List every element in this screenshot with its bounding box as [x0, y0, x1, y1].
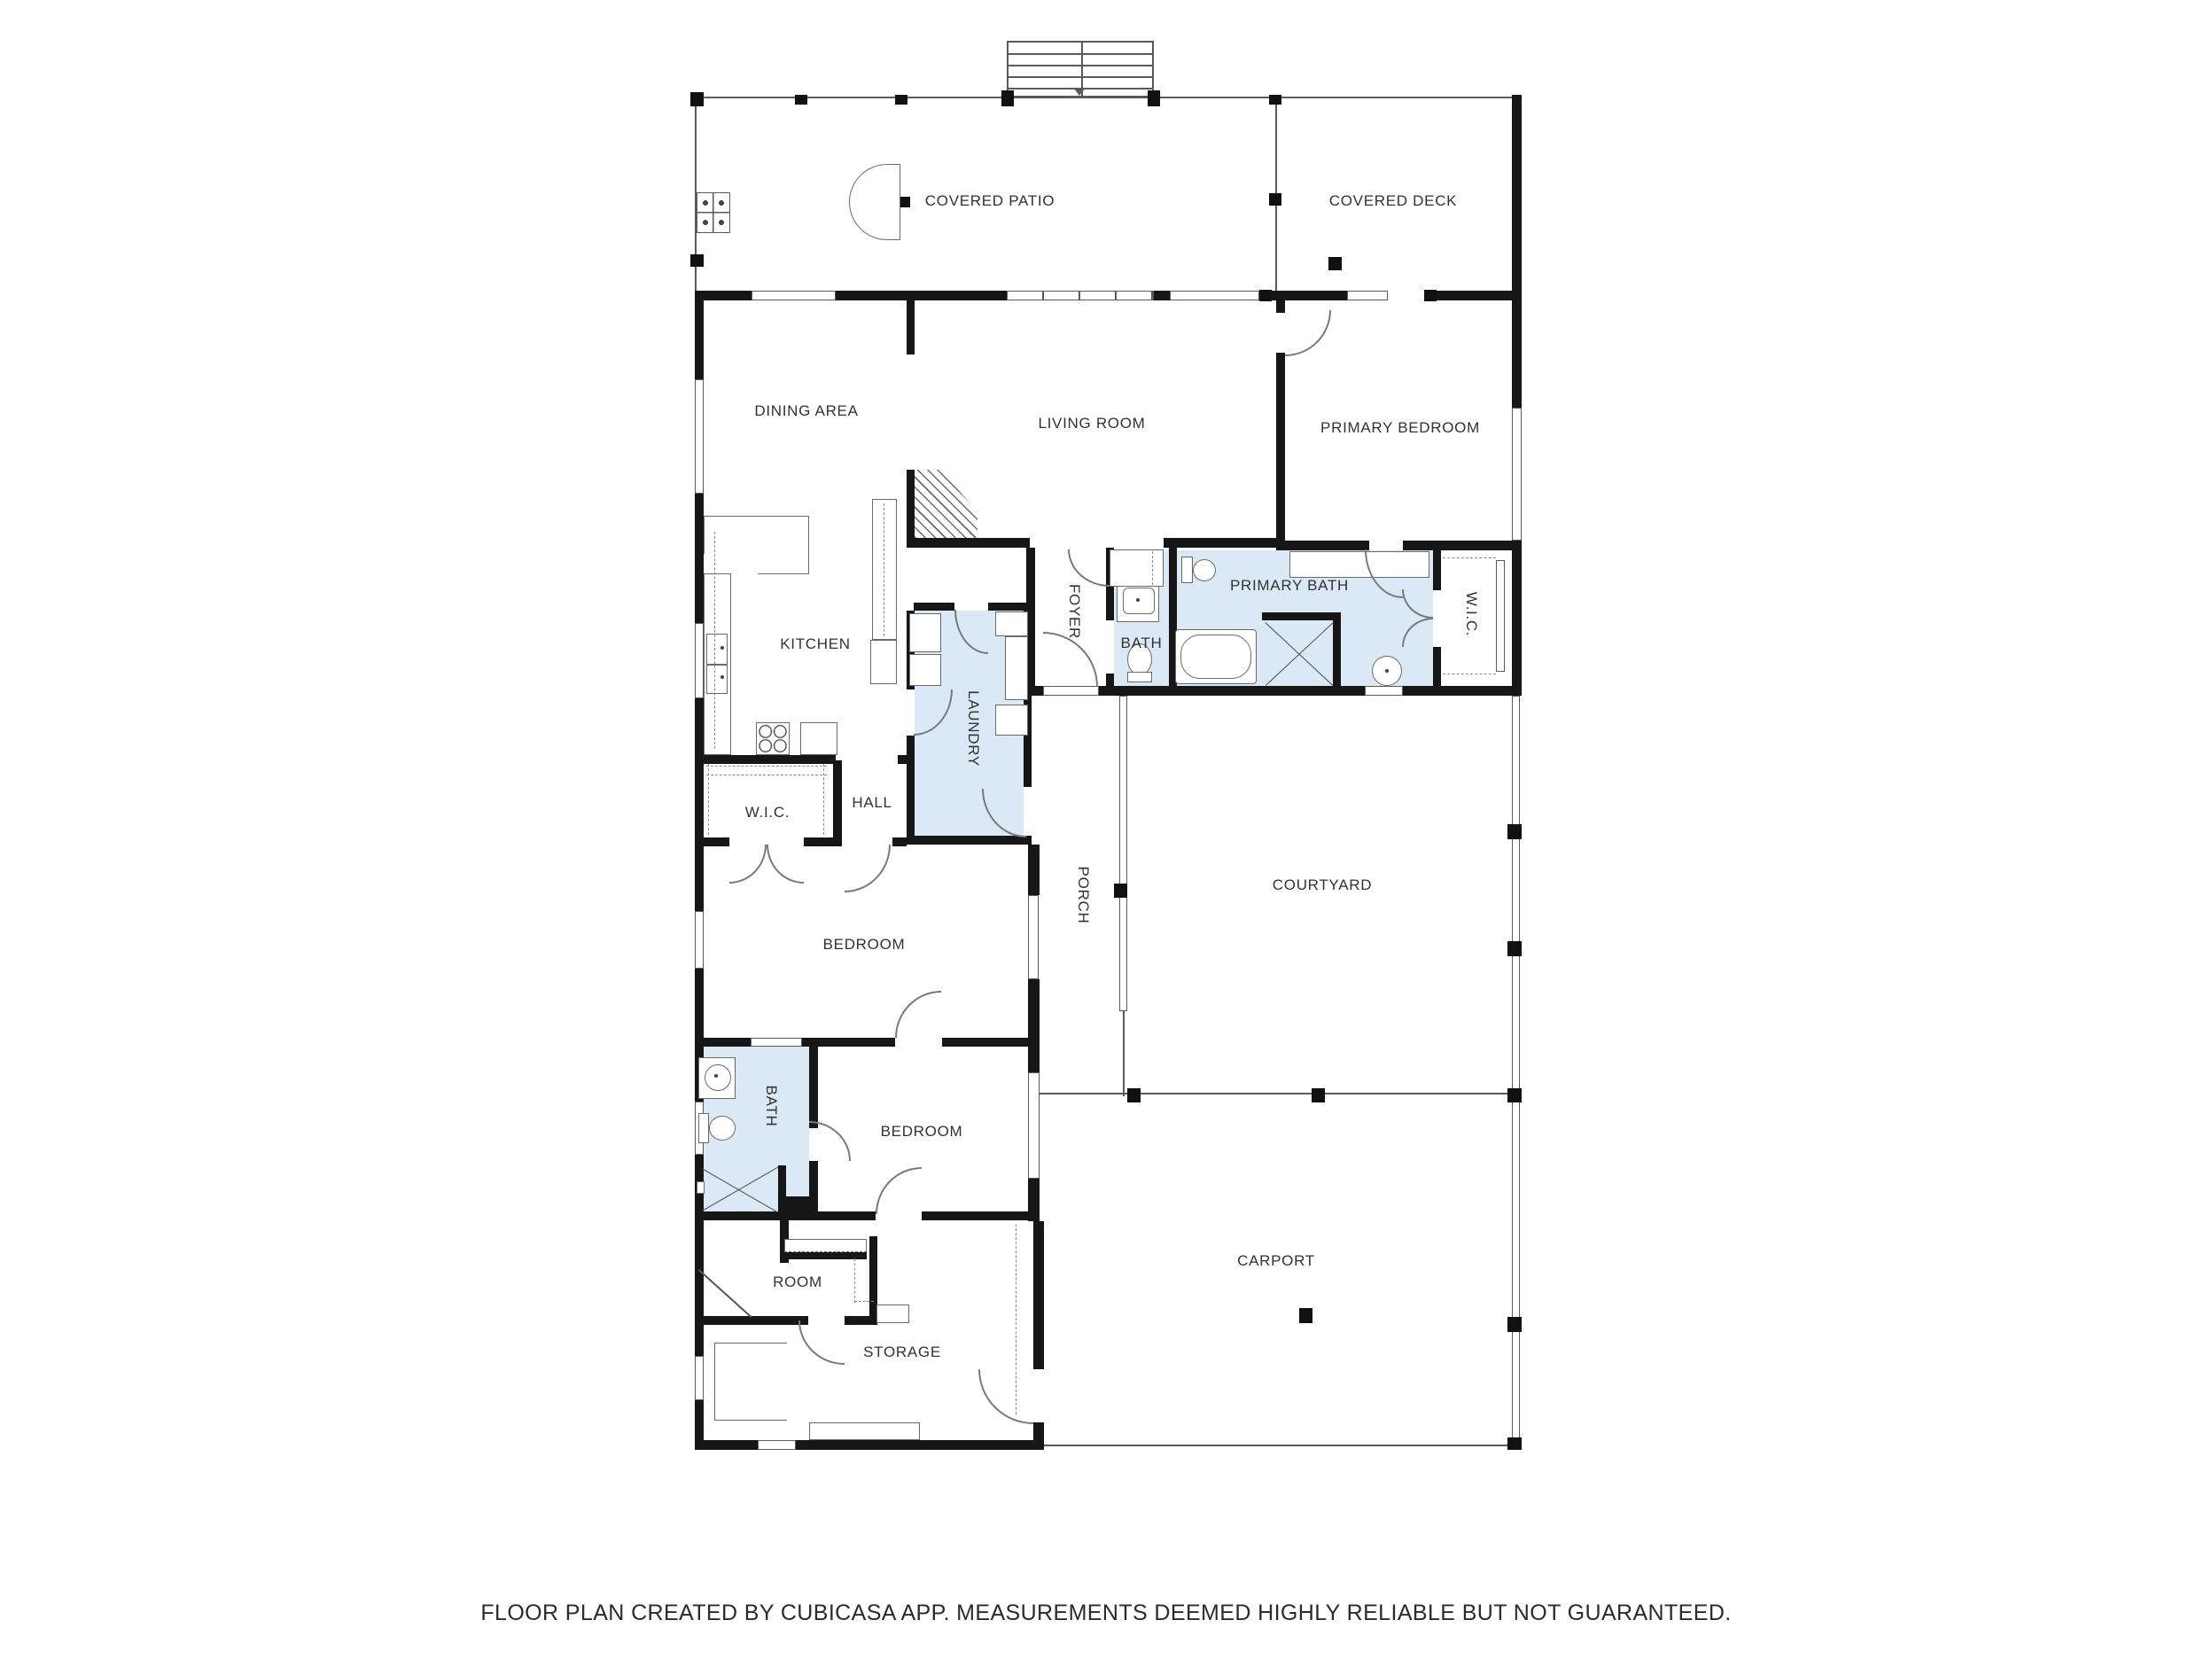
- room-label-bath-2: BATH: [762, 1086, 780, 1127]
- wall: [1433, 548, 1441, 590]
- wall: [804, 837, 842, 846]
- laundry-cabinet: [1005, 636, 1028, 700]
- wall: [695, 1038, 751, 1047]
- wall: [695, 1211, 818, 1220]
- wall: [796, 1440, 1044, 1450]
- wall: [892, 837, 907, 846]
- wall: [695, 698, 704, 911]
- closet-dash: [708, 764, 711, 835]
- closet-dash: [823, 764, 826, 835]
- courtyard-right-edge: [1512, 696, 1520, 1445]
- laundry-cabinet: [995, 611, 1028, 636]
- room-label-bedroom-2: BEDROOM: [881, 1123, 963, 1141]
- stove-cooktop: [756, 722, 790, 755]
- kitchen-cabinet: [870, 640, 897, 684]
- post: [1299, 1308, 1312, 1323]
- wall: [818, 1211, 876, 1220]
- closet-dash: [854, 1258, 857, 1303]
- dryer: [909, 654, 941, 686]
- room-label-courtyard: COURTYARD: [1273, 876, 1372, 894]
- wall: [1028, 979, 1040, 1072]
- door-arc: [798, 1320, 845, 1365]
- room-diagonal-line: [698, 1269, 752, 1318]
- door-arc: [876, 1167, 922, 1214]
- wall: [1276, 541, 1369, 550]
- sliding-door: [1007, 291, 1154, 300]
- door-jamb: [1424, 290, 1437, 301]
- kitchen-counter: [704, 516, 809, 574]
- vanity-counter: [1289, 551, 1429, 578]
- porch-edge: [1119, 696, 1127, 1011]
- post: [1001, 90, 1014, 106]
- wall: [1512, 541, 1522, 696]
- room-label-primary-bath: PRIMARY BATH: [1230, 577, 1349, 595]
- post: [1507, 1437, 1522, 1450]
- closet-shelf: [1496, 560, 1505, 672]
- shower-head: [697, 1181, 705, 1194]
- room-label-covered-patio: COVERED PATIO: [925, 192, 1055, 210]
- room-label-dining-area: DINING AREA: [754, 402, 858, 420]
- door-arc: [767, 845, 804, 884]
- wall: [922, 1211, 1039, 1220]
- closet-dash: [1443, 557, 1496, 560]
- closet-dash: [1152, 551, 1155, 585]
- post: [1114, 884, 1127, 898]
- cabinet-dash: [884, 503, 886, 636]
- porch-edge-line: [1123, 1011, 1125, 1096]
- wall: [695, 494, 704, 623]
- room-label-carport: CARPORT: [1237, 1252, 1315, 1270]
- toilet-tank: [1127, 672, 1152, 682]
- door-arc: [729, 845, 767, 884]
- wall: [907, 300, 915, 354]
- entry-threshold: [1043, 686, 1099, 696]
- window: [758, 1440, 796, 1450]
- wall: [695, 837, 729, 846]
- toilet: [709, 1116, 736, 1141]
- patio-top-line: [695, 97, 1522, 98]
- post: [895, 95, 907, 105]
- window: [695, 379, 704, 494]
- post: [690, 254, 704, 267]
- wall: [695, 1316, 808, 1325]
- stair-direction-arrow: [1074, 89, 1085, 96]
- room-label-primary-bedroom: PRIMARY BEDROOM: [1320, 419, 1480, 437]
- door-arc: [1068, 549, 1110, 587]
- door-arc: [845, 845, 891, 892]
- wall: [1259, 291, 1347, 300]
- storage-shelf: [876, 1305, 909, 1323]
- room-label-storage: STORAGE: [863, 1344, 941, 1361]
- closet-dash: [706, 775, 827, 777]
- wall: [695, 1440, 758, 1450]
- wall: [836, 291, 1007, 300]
- wall: [907, 470, 915, 548]
- window: [695, 1356, 704, 1400]
- fireplace: [915, 470, 977, 538]
- room-label-porch: PORCH: [1074, 867, 1092, 924]
- post: [690, 92, 704, 106]
- wall: [1276, 353, 1285, 548]
- cased-opening: [751, 1038, 802, 1047]
- storage-shelf: [809, 1422, 920, 1440]
- wall: [988, 603, 1031, 611]
- toilet: [1193, 559, 1216, 581]
- door-jamb: [1259, 290, 1272, 301]
- post: [1507, 1317, 1522, 1332]
- closet-dash: [1443, 674, 1496, 676]
- toilet-tank: [1181, 557, 1193, 583]
- wall: [809, 1046, 818, 1128]
- deck-furniture: [1328, 257, 1342, 270]
- shower-wall: [1262, 612, 1341, 620]
- room-label-room: ROOM: [773, 1273, 822, 1291]
- patio-feature-anchor: [900, 197, 910, 207]
- room-label-bath-upper: BATH: [1121, 635, 1163, 652]
- room-label-bedroom-1: BEDROOM: [823, 936, 906, 954]
- door-arc: [895, 991, 941, 1038]
- window: [695, 623, 704, 698]
- wall: [1154, 291, 1170, 300]
- wall: [907, 538, 1030, 548]
- door-arc: [809, 1121, 851, 1161]
- shower-wall: [1333, 612, 1341, 687]
- wall: [1033, 1422, 1044, 1450]
- closet-dash: [854, 1301, 874, 1304]
- wall: [1276, 300, 1285, 313]
- room-label-covered-deck: COVERED DECK: [1329, 192, 1457, 210]
- courtyard-bottom-line: [1040, 1093, 1522, 1094]
- wall: [786, 1196, 818, 1212]
- room-label-kitchen: KITCHEN: [780, 635, 851, 653]
- wall: [1033, 1221, 1044, 1369]
- room-label-laundry: LAUNDRY: [964, 690, 982, 767]
- wall: [914, 603, 954, 611]
- closet-dash: [706, 766, 827, 768]
- window: [1170, 291, 1259, 300]
- kitchen-counter: [800, 722, 837, 755]
- window: [752, 291, 836, 300]
- footer-disclaimer: FLOOR PLAN CREATED BY CUBICASA APP. MEAS…: [0, 1601, 2212, 1626]
- grill-icon: [697, 192, 730, 233]
- laundry-cabinet: [995, 705, 1028, 736]
- storage-shelf: [714, 1343, 787, 1421]
- window: [695, 911, 704, 969]
- post: [1312, 1088, 1325, 1102]
- wall: [778, 1165, 786, 1211]
- wall: [1164, 538, 1276, 548]
- post: [1127, 1088, 1141, 1102]
- wall: [1403, 541, 1522, 550]
- window: [1512, 408, 1522, 541]
- window: [1365, 686, 1403, 696]
- wall: [942, 1038, 1039, 1047]
- carport-bottom-line: [1044, 1445, 1522, 1446]
- wall: [833, 760, 842, 846]
- post: [1507, 1088, 1522, 1102]
- foyer-closet: [1110, 549, 1164, 587]
- door-arc: [1285, 310, 1331, 356]
- wall: [1403, 686, 1522, 696]
- floor-plan: COVERED PATIO COVERED DECK DINING AREA L…: [0, 0, 2212, 1659]
- window: [1028, 1072, 1040, 1179]
- post: [1507, 941, 1522, 956]
- post: [795, 95, 807, 105]
- toilet-tank: [698, 1113, 709, 1143]
- closet-shelf: [784, 1239, 867, 1252]
- wall: [845, 1316, 877, 1325]
- pedestal-sink: [1372, 656, 1402, 686]
- wall: [1512, 95, 1522, 291]
- bathtub: [1175, 629, 1257, 684]
- wall: [907, 736, 915, 842]
- window: [1347, 291, 1388, 300]
- post: [1148, 90, 1160, 106]
- bathroom-sink: [698, 1057, 736, 1099]
- post: [1269, 95, 1281, 105]
- wall: [1028, 845, 1040, 895]
- wall: [1099, 686, 1365, 696]
- wall: [695, 291, 704, 379]
- post: [1269, 193, 1281, 206]
- wall: [1512, 291, 1522, 408]
- wall: [907, 836, 1032, 845]
- wall: [695, 755, 836, 764]
- wall: [1436, 291, 1522, 300]
- window: [1028, 895, 1039, 979]
- washer: [909, 613, 941, 652]
- kitchen-sink: [706, 634, 728, 694]
- room-label-wic-right: W.I.C.: [1462, 592, 1480, 636]
- post: [1507, 824, 1522, 839]
- door-arc: [1043, 632, 1098, 687]
- room-label-hall: HALL: [852, 794, 892, 812]
- door-arc: [978, 1369, 1033, 1424]
- room-label-wic-left: W.I.C.: [745, 804, 790, 822]
- counter-dash: [714, 532, 717, 749]
- patio-fire-feature: [849, 164, 900, 240]
- room-label-living-room: LIVING ROOM: [1038, 415, 1145, 432]
- room-label-foyer: FOYER: [1065, 584, 1083, 639]
